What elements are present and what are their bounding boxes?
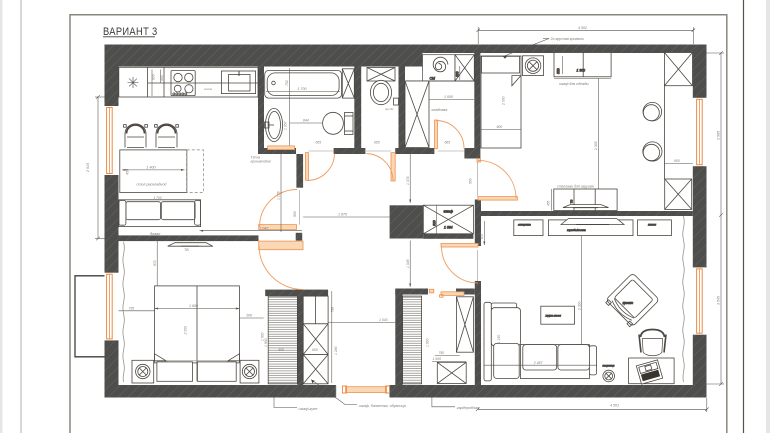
svg-text:600: 600 bbox=[247, 314, 253, 318]
svg-text:1 900: 1 900 bbox=[264, 338, 268, 347]
svg-text:735: 735 bbox=[129, 307, 135, 311]
svg-text:1 176: 1 176 bbox=[277, 191, 281, 200]
svg-text:1 876: 1 876 bbox=[338, 212, 347, 216]
svg-text:1 240: 1 240 bbox=[334, 346, 338, 355]
svg-text:900: 900 bbox=[497, 125, 503, 129]
svg-text:665: 665 bbox=[316, 141, 322, 145]
svg-text:тумба/полка: тумба/полка bbox=[567, 228, 586, 232]
svg-text:750: 750 bbox=[439, 351, 445, 355]
svg-text:инс.бл: инс.бл bbox=[385, 107, 394, 111]
svg-text:шкаф-купе: шкаф-купе bbox=[299, 407, 318, 411]
svg-text:2 000: 2 000 bbox=[183, 326, 187, 336]
svg-text:1 600: 1 600 bbox=[433, 357, 442, 361]
svg-text:2х-ярусная кровать: 2х-ярусная кровать bbox=[550, 37, 585, 41]
svg-text:972: 972 bbox=[153, 260, 157, 266]
svg-text:665: 665 bbox=[374, 141, 380, 145]
svg-text:кресло: кресло bbox=[623, 301, 634, 305]
svg-text:2 300: 2 300 bbox=[577, 301, 581, 311]
svg-text:600: 600 bbox=[456, 71, 460, 77]
svg-text:шкаф для одежды: шкаф для одежды bbox=[559, 82, 589, 86]
svg-text:ТВ: ТВ bbox=[184, 248, 189, 252]
svg-text:2 042: 2 042 bbox=[258, 227, 268, 231]
svg-text:1 700: 1 700 bbox=[298, 87, 307, 91]
svg-text:стол раскладной: стол раскладной bbox=[137, 182, 167, 186]
svg-text:книги: книги bbox=[648, 223, 656, 227]
svg-text:1 150: 1 150 bbox=[497, 335, 501, 344]
svg-text:шкаф: шкаф bbox=[444, 210, 454, 214]
svg-text:кронштейне: кронштейне bbox=[251, 160, 272, 164]
svg-text:736: 736 bbox=[331, 307, 335, 313]
svg-text:3 905: 3 905 bbox=[717, 131, 721, 140]
svg-text:600: 600 bbox=[674, 159, 680, 163]
svg-text:2 915: 2 915 bbox=[86, 163, 90, 173]
svg-text:1 076: 1 076 bbox=[406, 176, 410, 185]
svg-text:1 700: 1 700 bbox=[154, 196, 162, 200]
svg-text:2 305: 2 305 bbox=[594, 141, 598, 151]
svg-text:950: 950 bbox=[469, 178, 473, 184]
svg-text:ТВ: ТВ bbox=[570, 200, 574, 204]
svg-text:журн.стол: журн.стол bbox=[545, 314, 562, 318]
svg-text:1 600: 1 600 bbox=[189, 304, 198, 308]
svg-text:1 300: 1 300 bbox=[577, 69, 586, 73]
svg-text:844: 844 bbox=[303, 119, 309, 123]
svg-text:торшер: торшер bbox=[603, 364, 615, 368]
svg-text:СМ: СМ bbox=[430, 76, 436, 80]
svg-text:637: 637 bbox=[480, 233, 484, 239]
svg-text:750: 750 bbox=[285, 80, 289, 86]
svg-text:1 057: 1 057 bbox=[284, 121, 288, 130]
svg-text:550: 550 bbox=[557, 68, 561, 74]
svg-text:стеллажи для игрушек: стеллажи для игрушек bbox=[557, 184, 594, 188]
svg-text:1 400: 1 400 bbox=[147, 165, 156, 169]
svg-text:455: 455 bbox=[547, 200, 551, 206]
svg-text:кладовая: кладовая bbox=[432, 108, 448, 112]
svg-text:3 545: 3 545 bbox=[717, 296, 721, 305]
svg-text:плита: плита bbox=[204, 88, 212, 91]
svg-text:4 501: 4 501 bbox=[610, 404, 619, 408]
svg-text:гардеробная: гардеробная bbox=[457, 406, 479, 410]
svg-text:600: 600 bbox=[152, 74, 156, 80]
svg-text:665: 665 bbox=[445, 141, 451, 145]
svg-text:2 487: 2 487 bbox=[533, 361, 544, 365]
svg-text:450: 450 bbox=[160, 75, 164, 81]
svg-text:диван: диван bbox=[150, 232, 161, 236]
svg-text:витрина: витрина bbox=[518, 223, 531, 227]
svg-text:950: 950 bbox=[293, 211, 297, 217]
svg-text:600: 600 bbox=[278, 348, 284, 352]
svg-text:1 084: 1 084 bbox=[444, 226, 453, 230]
svg-text:1 000: 1 000 bbox=[444, 95, 453, 99]
svg-text:1 043: 1 043 bbox=[379, 318, 388, 322]
svg-text:600: 600 bbox=[312, 348, 318, 352]
svg-text:4 502: 4 502 bbox=[578, 26, 587, 30]
svg-text:2 000: 2 000 bbox=[502, 96, 506, 106]
svg-text:450: 450 bbox=[125, 169, 129, 175]
svg-text:1 045: 1 045 bbox=[406, 259, 410, 268]
svg-text:600: 600 bbox=[432, 220, 436, 226]
svg-text:шкаф, банкетка, обувница: шкаф, банкетка, обувница bbox=[359, 404, 406, 408]
svg-text:1 900: 1 900 bbox=[425, 338, 429, 347]
